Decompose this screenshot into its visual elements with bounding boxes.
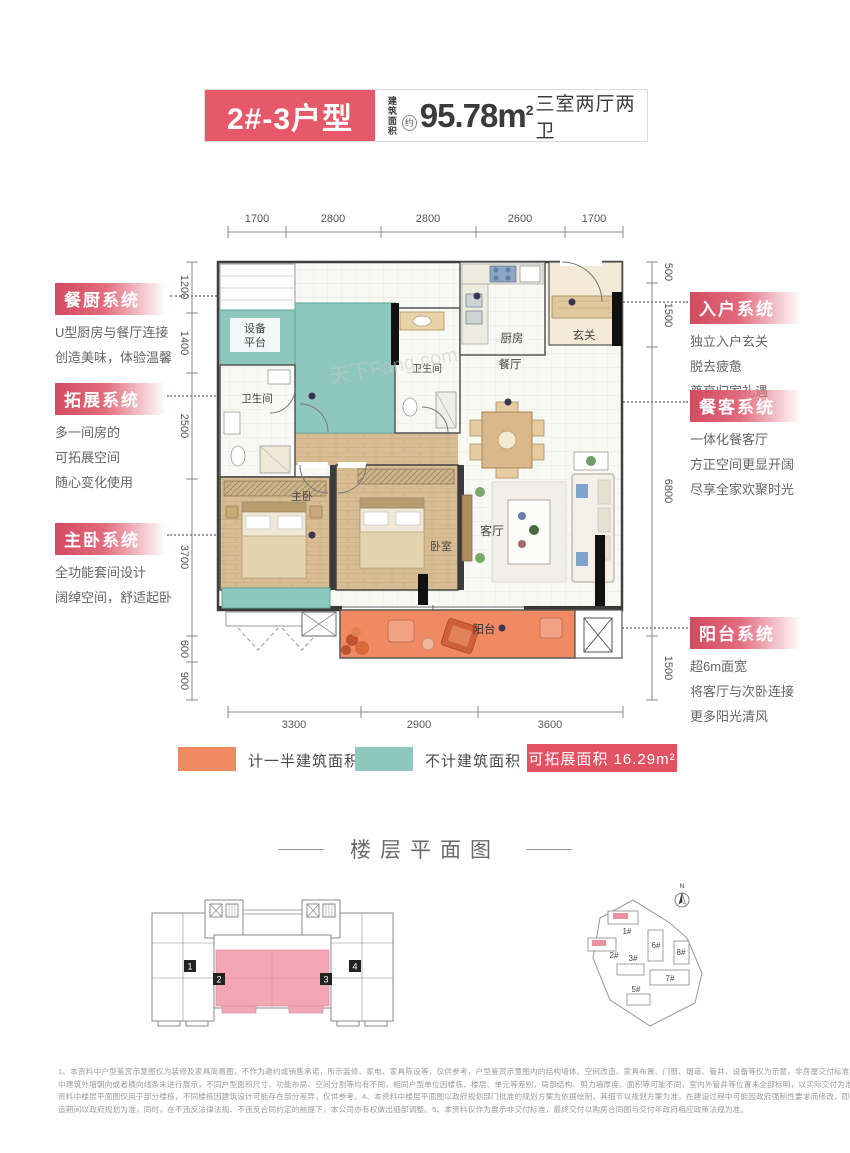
legend-swatch-teal: [355, 747, 413, 771]
ruler-top: [228, 226, 623, 238]
room-label-master: 主卧: [291, 490, 313, 503]
dim-left: 2500: [178, 414, 190, 438]
annotation-entry-title: 入户系统: [690, 292, 800, 324]
unit-badge-4: 4: [352, 962, 357, 972]
dim-right: 6800: [662, 479, 674, 503]
dim-right: 500: [662, 263, 674, 281]
rule-left: [278, 849, 324, 850]
dim-left: 1200: [178, 275, 190, 299]
dim-top: 2800: [416, 213, 440, 225]
dim-top: 1700: [582, 213, 606, 225]
area-label-line1: 建筑: [384, 96, 401, 116]
annotation-entry: 入户系统 独立入户玄关 脱去疲惫 尊享归家礼遇: [690, 292, 840, 404]
annotation-line: 超6m面宽: [690, 654, 840, 679]
area-value: 95.78m2: [420, 97, 533, 135]
wall-chunk: [595, 535, 605, 608]
room-label-living: 客厅: [480, 523, 504, 538]
site-label-6: 6#: [652, 941, 661, 950]
site-label-1: 1#: [623, 927, 632, 936]
disclaimer-line: 1、本资料中户型鉴赏示意图仅为装修及家具简易图，不作为邀约或销售承诺，所示装修、…: [58, 1066, 794, 1079]
area-sup: 2: [526, 102, 533, 118]
dim-left: 900: [178, 672, 190, 690]
annotation-line: 尽享全家欢聚时光: [690, 477, 840, 502]
legend-swatch-orange: [178, 747, 236, 771]
dim-bottom: 2900: [407, 719, 431, 731]
flyer-page: 2#-3户型 建筑 面积 约 95.78m2 三室两厅两卫 餐厨系统 U型厨房与…: [0, 0, 850, 1153]
floor-section-title: 楼层平面图: [350, 834, 500, 864]
approx-badge: 约: [402, 115, 417, 131]
highlighted-units: [216, 950, 329, 1013]
dim-right: 1500: [662, 656, 674, 680]
dim-left: 600: [178, 640, 190, 658]
floor-plate-diagram: 1 2 3 4: [150, 888, 395, 1033]
site-label-5: 5#: [632, 985, 641, 994]
room-label-equipment-1: 设备: [244, 321, 266, 335]
dim-top: 1700: [245, 213, 269, 225]
floor-section-header: 楼层平面图: [0, 834, 850, 864]
disclaimer: 1、本资料中户型鉴赏示意图仅为装修及家具简易图，不作为邀约或销售承诺，所示装修、…: [58, 1066, 794, 1116]
wall-chunk: [330, 465, 336, 590]
dim-top: 2600: [508, 213, 532, 225]
annotation-line: 更多阳光清风: [690, 704, 840, 729]
north-label: N: [680, 883, 685, 890]
unit-badge-3: 3: [323, 975, 328, 985]
annotation-dining-living-title: 餐客系统: [690, 390, 800, 422]
legend-half-area: 计一半建筑面积: [248, 750, 360, 771]
dim-left: 3700: [178, 545, 190, 569]
site-plan: N 1# 2# 3# 5# 6# 7# 8#: [575, 878, 770, 1043]
room-label-dining: 餐厅: [499, 357, 522, 371]
room-label-equipment-2: 平台: [244, 335, 266, 349]
site-label-3: 3#: [629, 954, 638, 963]
room-kitchen: 厨房: [460, 262, 545, 355]
dim-right: 1500: [662, 303, 674, 327]
ruler-left-labels: 1200 1400 2500 3700 600 900: [178, 275, 190, 690]
area-number: 95.78m: [420, 97, 526, 134]
ruler-top-labels: 1700 2800 2800 2600 1700: [245, 213, 606, 225]
annotation-line: 方正空间更显开阔: [690, 452, 840, 477]
site-label-7: 7#: [666, 974, 675, 983]
header: 2#-3户型 建筑 面积 约 95.78m2 三室两厅两卫: [204, 89, 648, 142]
annotation-line: 将客厅与次卧连接: [690, 679, 840, 704]
room-master: 主卧: [220, 462, 330, 590]
floor-plan: 1700 2800 2800 2600 1700 3300 2900 3600 …: [160, 200, 690, 740]
area-label-line2: 面积: [384, 116, 401, 136]
dim-bottom: 3300: [282, 719, 306, 731]
legend-expandable-area: 可拓展面积 16.29m²: [527, 744, 677, 772]
unit-badge-2: 2: [216, 975, 221, 985]
disclaimer-line: 中建筑外墙朝向或者横向线条未进行展示，不同户型面积尺寸、功能布局、空间分割等均有…: [58, 1079, 794, 1092]
annotation-line: 一体化餐客厅: [690, 427, 840, 452]
annotation-line: 独立入户玄关: [690, 329, 840, 354]
legend-excluded-area: 不计建筑面积: [425, 750, 521, 771]
ruler-bottom: [228, 706, 623, 718]
room-bedroom2: 卧室: [336, 462, 458, 590]
annotation-dining-living: 餐客系统 一体化餐客厅 方正空间更显开阔 尽享全家欢聚时光: [690, 390, 840, 502]
ruler-right-labels: 500 1500 6800 1500: [662, 263, 674, 680]
dim-left: 1400: [178, 331, 190, 355]
disclaimer-line: 造期间以政府规划为准，同时，在不违反法律法规、不违反合同约定的前提下，本公司亦有…: [58, 1104, 794, 1117]
dim-top: 2800: [321, 213, 345, 225]
room-label-bath1: 卫生间: [241, 392, 273, 405]
disclaimer-line: 资料中楼层平面图仅用于部分楼栋，不同楼栋因建筑设计可能存在部分差异，仅供参考。4…: [58, 1091, 794, 1104]
room-foyer: 玄关: [549, 258, 622, 345]
site-label-2: 2#: [610, 951, 619, 960]
bay-teal: [222, 588, 330, 608]
annotation-master-title: 主卧系统: [55, 523, 165, 555]
room-balcony: 阳台: [340, 610, 575, 658]
wall-chunk: [612, 292, 622, 346]
unit-badge-1: 1: [187, 962, 192, 972]
header-area-info: 建筑 面积 约 95.78m2 三室两厅两卫: [375, 90, 647, 141]
elevator-shaft: [575, 610, 622, 658]
unit-title: 2#-3户型: [205, 90, 375, 141]
annotation-kitchen-dining-title: 餐厨系统: [55, 283, 165, 315]
bedroom-door-gap: [338, 462, 366, 468]
rule-right: [526, 849, 572, 850]
ac-platform: [302, 612, 336, 636]
room-label-bedroom: 卧室: [430, 539, 452, 553]
dim-bottom: 3600: [538, 719, 562, 731]
wall-chunk: [418, 574, 428, 610]
ruler-right: [646, 262, 658, 700]
room-bath1: 卫生间: [220, 365, 295, 477]
room-equipment-platform: 设备 平台: [220, 264, 295, 365]
north-compass: N: [675, 883, 689, 907]
annotation-line: 脱去疲惫: [690, 354, 840, 379]
master-door-gap: [298, 462, 328, 468]
room-label-kitchen: 厨房: [501, 332, 524, 345]
site-label-8: 8#: [677, 948, 686, 957]
annotation-balcony-title: 阳台系统: [690, 617, 800, 649]
room-label-balcony: 阳台: [473, 622, 496, 636]
annotation-balcony: 阳台系统 超6m面宽 将客厅与次卧连接 更多阳光清风: [690, 617, 840, 729]
ruler-left: [186, 262, 198, 700]
room-label-foyer: 玄关: [573, 328, 596, 342]
layout-desc: 三室两厅两卫: [535, 89, 647, 143]
area-label: 建筑 面积: [384, 96, 401, 136]
annotation-expand-title: 拓展系统: [55, 383, 165, 415]
ruler-bottom-labels: 3300 2900 3600: [282, 719, 562, 731]
